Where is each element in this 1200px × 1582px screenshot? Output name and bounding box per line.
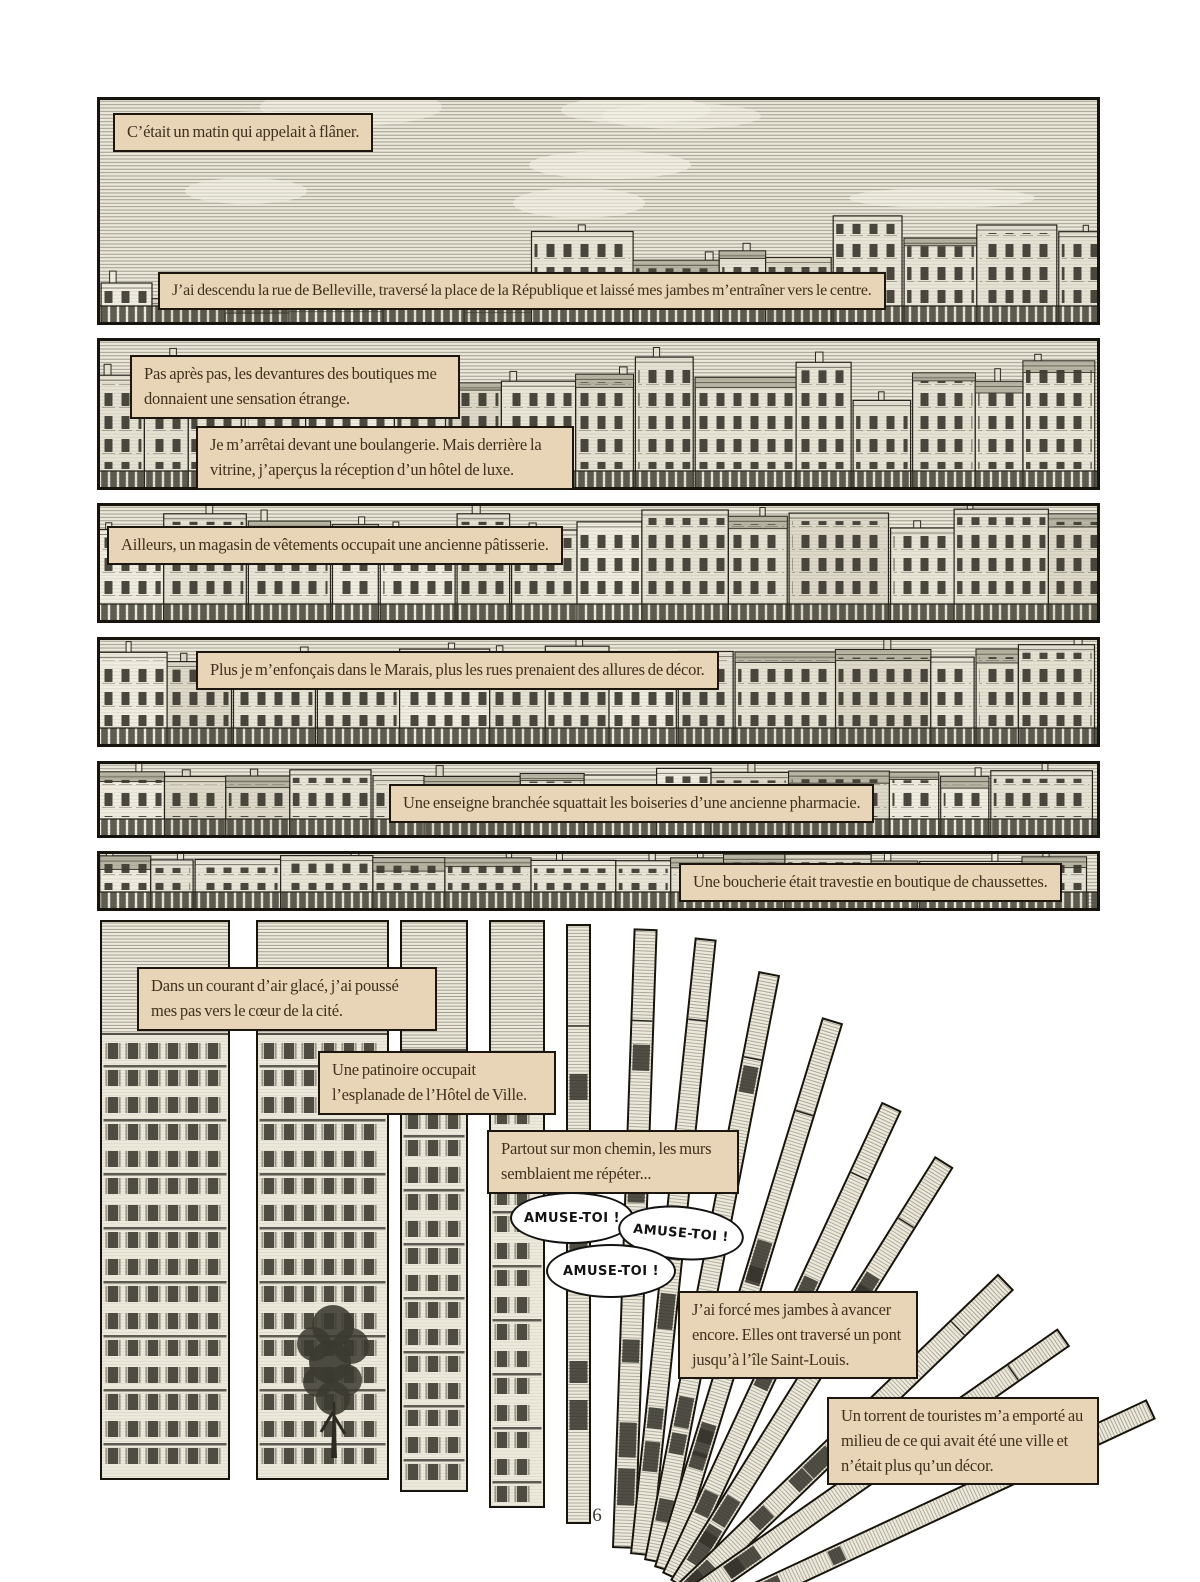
caption-boucherie: Une boucherie était travestie en boutiqu… [679,863,1062,902]
caption-belleville: J’ai descendu la rue de Belleville, trav… [158,272,886,310]
caption-courant: Dans un courant d’air glacé, j’ai poussé… [137,967,437,1031]
panel-2-cityscape: Pas après pas, les devantures des boutiq… [97,338,1100,490]
caption-patinoire: Une patinoire occupait l’esplanade de l’… [318,1051,556,1115]
caption-pharmacie: Une enseigne branchée squattait les bois… [389,784,874,823]
caption-partout: Partout sur mon chemin, les murs semblai… [487,1130,739,1194]
tree-illustration [288,1292,378,1462]
caption-devantures: Pas après pas, les devantures des boutiq… [130,355,460,419]
page-number: 6 [547,1505,647,1527]
panel-5-cityscape: Une enseigne branchée squattait les bois… [97,761,1100,838]
caption-marais: Plus je m’enfonçais dans le Marais, plus… [196,651,719,690]
caption-boulangerie: Je m’arrêtai devant une boulangerie. Mai… [196,426,574,490]
caption-patisserie: Ailleurs, un magasin de vêtements occupa… [107,526,563,565]
speech-bubble-amuse-1: AMUSE-TOI ! [510,1192,634,1244]
caption-torrent: Un torrent de touristes m’a emporté au m… [827,1397,1099,1485]
panel-1-cityscape: C’était un matin qui appelait à flâner. … [97,97,1100,325]
comic-page: C’était un matin qui appelait à flâner. … [0,0,1200,1582]
speech-bubble-amuse-3: AMUSE-TOI ! [546,1244,676,1298]
panel-3-cityscape: Ailleurs, un magasin de vêtements occupa… [97,503,1100,623]
caption-morning: C’était un matin qui appelait à flâner. [113,113,373,152]
panel-6-cityscape: Une boucherie était travestie en boutiqu… [97,851,1100,911]
panel-4-cityscape: Plus je m’enfonçais dans le Marais, plus… [97,637,1100,747]
falling-strips-scene: Dans un courant d’air glacé, j’ai poussé… [0,920,1200,1582]
caption-jambes: J’ai forcé mes jambes à avancer encore. … [678,1291,918,1379]
